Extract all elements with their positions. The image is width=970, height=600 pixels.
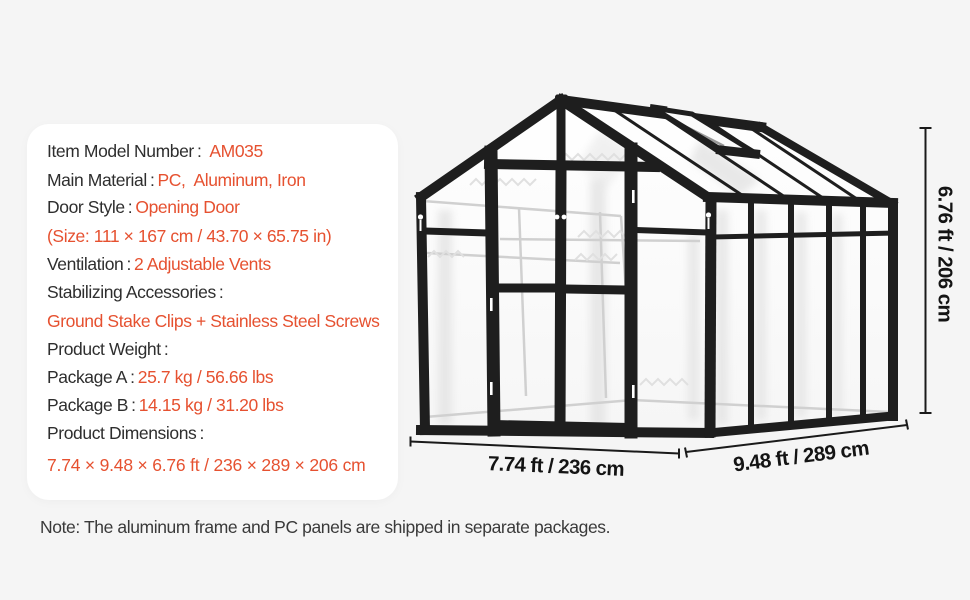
svg-text:7.74 ft / 236 cm: 7.74 ft / 236 cm bbox=[487, 452, 624, 481]
svg-text:9.48 ft / 289 cm: 9.48 ft / 289 cm bbox=[732, 437, 870, 477]
svg-text:6.76 ft / 206 cm: 6.76 ft / 206 cm bbox=[934, 186, 957, 322]
